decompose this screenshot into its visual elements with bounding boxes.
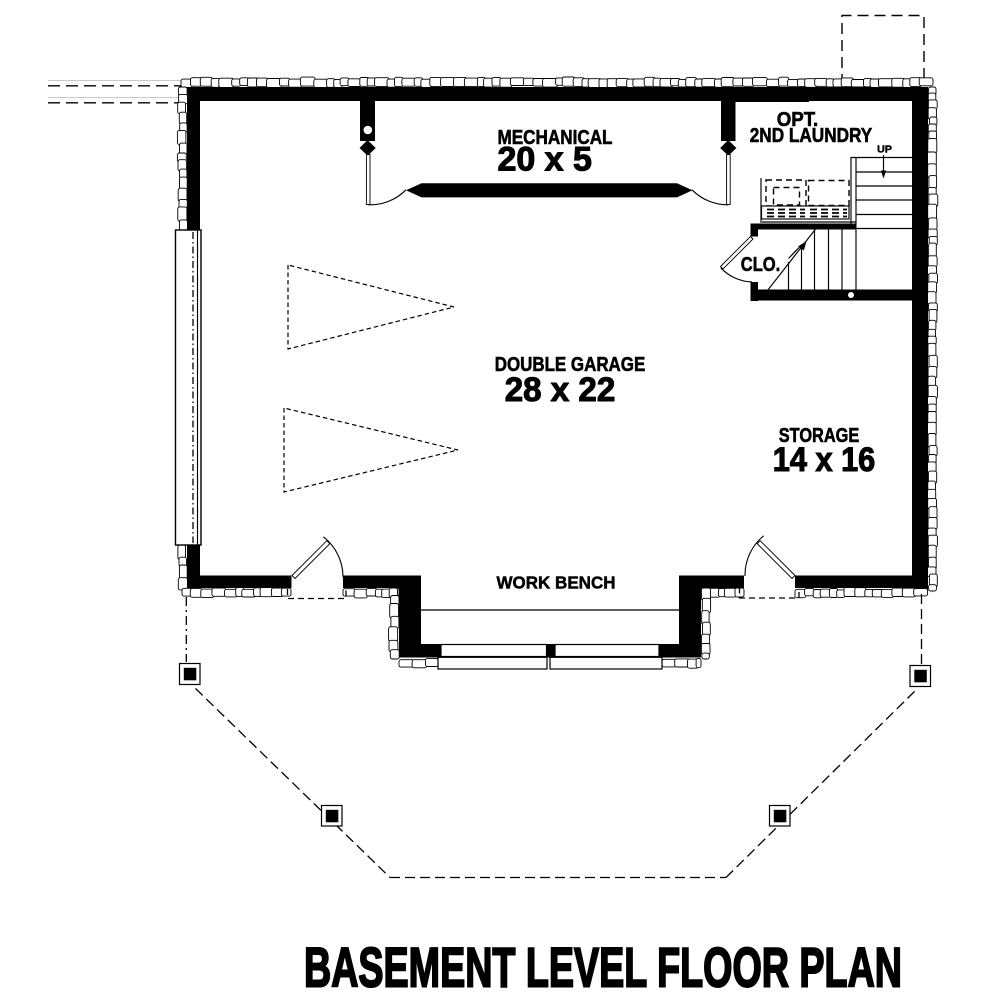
svg-text:20 x 5: 20 x 5 [497,140,592,178]
svg-text:BASEMENT LEVEL FLOOR PLAN: BASEMENT LEVEL FLOOR PLAN [304,937,902,999]
svg-text:28 x 22: 28 x 22 [505,371,616,409]
svg-text:WORK BENCH: WORK BENCH [497,573,616,593]
svg-text:CLO.: CLO. [741,254,781,276]
svg-text:2ND LAUNDRY: 2ND LAUNDRY [750,125,873,147]
svg-text:UP: UP [877,144,892,156]
svg-text:14 x 16: 14 x 16 [773,441,876,479]
